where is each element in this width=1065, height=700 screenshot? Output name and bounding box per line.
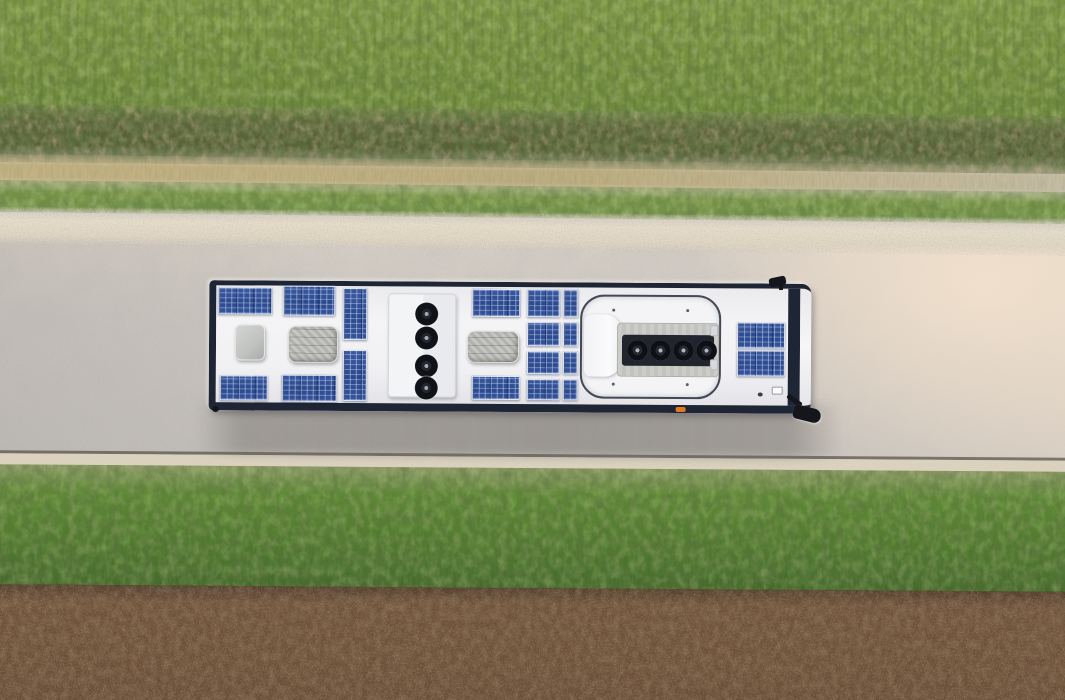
solar-panel: [343, 288, 367, 340]
ac-unit: [467, 331, 519, 363]
roof-fan: [415, 302, 438, 325]
solar-panel: [472, 289, 520, 317]
ploughed-field: [0, 584, 1065, 700]
solar-panel: [563, 351, 578, 374]
bolt: [612, 383, 615, 386]
solar-panel: [218, 287, 272, 314]
solar-panel: [343, 350, 367, 401]
lower-verge-light-texture: [0, 464, 1065, 594]
roof-fan: [415, 354, 438, 377]
radiator-fan: [696, 340, 717, 361]
lower-terrain: [0, 450, 1065, 700]
soil-brown-texture: [0, 584, 1065, 700]
solar-panel: [563, 322, 578, 346]
solar-panel: [527, 379, 560, 400]
soil-dark-texture: [0, 584, 1065, 700]
roof-fan: [415, 376, 438, 399]
left-mirror-arm-icon: [779, 283, 783, 290]
radiator-fan: [650, 340, 671, 361]
lower-verge-blade-texture: [0, 464, 1065, 594]
bus-roof: [209, 280, 812, 414]
solar-panel: [472, 376, 520, 400]
lower-verge-dark-texture: [0, 464, 1065, 594]
aerial-photo: [0, 0, 1065, 700]
radiator-fan: [627, 340, 648, 361]
engine-hatch: [580, 294, 722, 399]
hatch-latch: [710, 325, 718, 336]
roof-fan: [415, 326, 438, 349]
bolt: [612, 309, 615, 312]
radiator-fan: [673, 340, 694, 361]
solar-panel: [737, 350, 785, 376]
solar-panel: [563, 379, 578, 400]
radiator-panel: [617, 323, 719, 378]
cooling-unit: [388, 293, 457, 397]
windshield-band: [788, 289, 801, 406]
upper-terrain: [0, 0, 1065, 256]
solar-panel: [527, 351, 560, 374]
lower-verge: [0, 464, 1065, 594]
solar-panel: [563, 289, 578, 317]
solar-panel: [527, 322, 560, 346]
bolt: [686, 383, 689, 386]
hatch-latch: [710, 359, 718, 370]
soil-light-texture: [0, 584, 1065, 700]
solar-panel: [737, 322, 785, 348]
roof-fitting: [758, 393, 763, 397]
solar-panel: [283, 286, 335, 316]
solar-panel: [527, 289, 560, 317]
roof-label: [772, 387, 783, 395]
ac-unit: [288, 326, 338, 363]
solar-panel: [282, 375, 337, 402]
front-cap: [800, 289, 812, 406]
solar-panel: [220, 375, 268, 400]
bolt: [686, 309, 689, 312]
side-marker-light: [676, 407, 686, 412]
radiator-fan-tray: [622, 335, 714, 367]
roof-hatch: [235, 324, 265, 360]
rear-fitting: [212, 406, 219, 412]
